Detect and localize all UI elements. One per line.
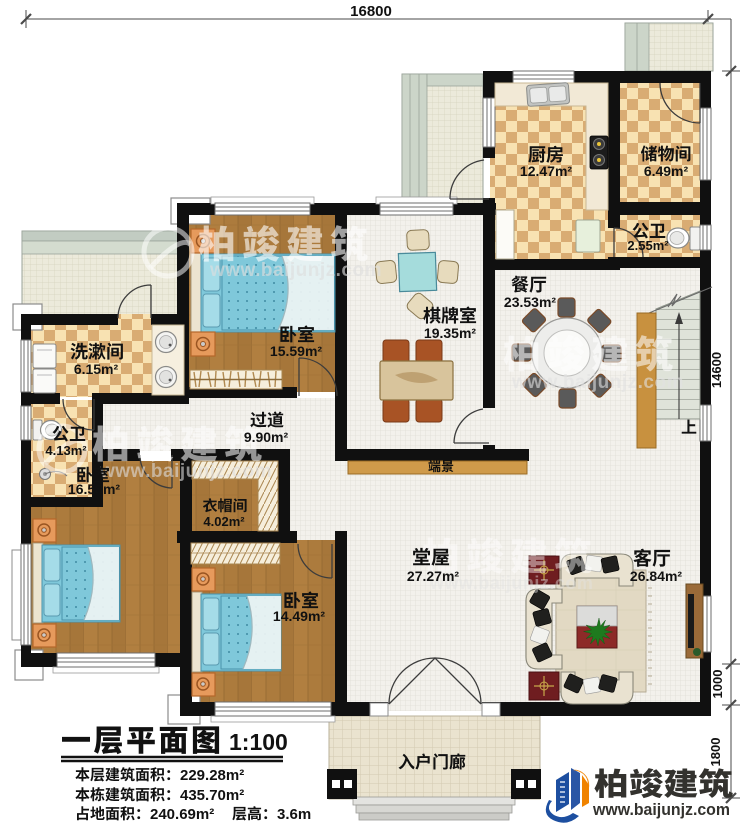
svg-text:435.70m²: 435.70m²: [180, 787, 244, 804]
svg-text:14600: 14600: [709, 352, 724, 388]
svg-text:26.84m²: 26.84m²: [630, 568, 682, 584]
svg-text:www.baijunjz.com: www.baijunjz.com: [592, 801, 730, 819]
svg-text:240.69m²: 240.69m²: [150, 806, 214, 823]
svg-text:23.53m²: 23.53m²: [504, 294, 556, 310]
svg-text:16800: 16800: [350, 3, 392, 20]
svg-text:9.90m²: 9.90m²: [244, 429, 289, 445]
svg-text:www.baijunjz.com: www.baijunjz.com: [511, 372, 684, 393]
svg-text:12.47m²: 12.47m²: [520, 163, 572, 179]
svg-text:www.baijunjz.com: www.baijunjz.com: [99, 461, 272, 482]
svg-text:19.35m²: 19.35m²: [424, 325, 476, 341]
svg-text:www.baijunjz.com: www.baijunjz.com: [209, 260, 382, 281]
svg-text:1:100: 1:100: [229, 729, 288, 755]
svg-text:6.15m²: 6.15m²: [74, 361, 119, 377]
svg-text:27.27m²: 27.27m²: [407, 568, 459, 584]
svg-text:14.49m²: 14.49m²: [273, 608, 325, 624]
svg-text:4.02m²: 4.02m²: [203, 514, 245, 529]
svg-text:4.13m²: 4.13m²: [45, 443, 87, 458]
svg-text:2.55m²: 2.55m²: [627, 238, 669, 253]
svg-text:3.6m: 3.6m: [277, 806, 311, 823]
svg-text:6.49m²: 6.49m²: [644, 163, 689, 179]
svg-text:1000: 1000: [710, 670, 725, 699]
svg-text:229.28m²: 229.28m²: [180, 767, 244, 784]
svg-text:15.59m²: 15.59m²: [270, 343, 322, 359]
svg-text:16.58m²: 16.58m²: [68, 481, 120, 497]
svg-text:1800: 1800: [708, 738, 723, 767]
